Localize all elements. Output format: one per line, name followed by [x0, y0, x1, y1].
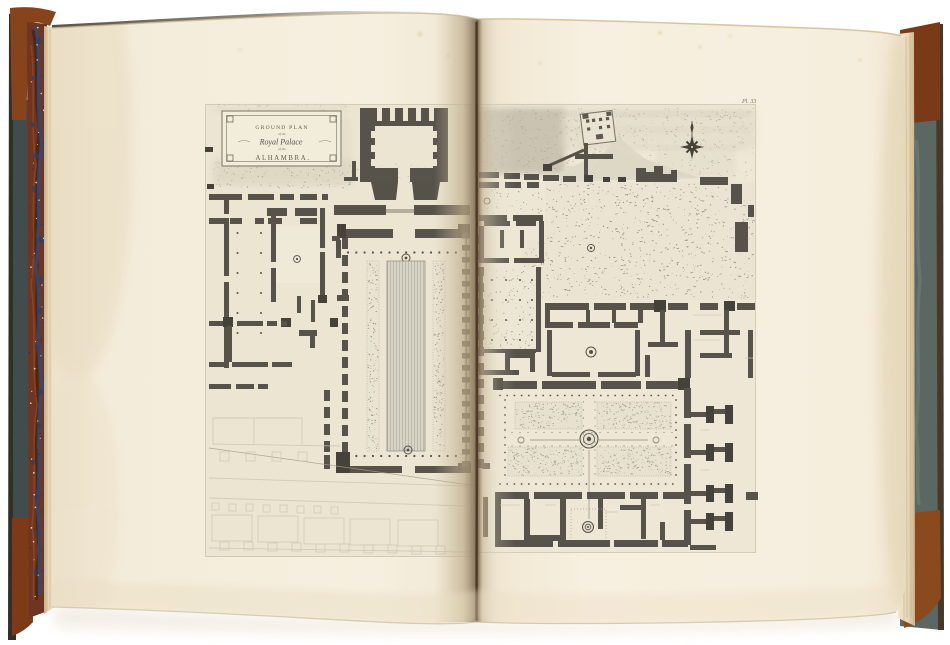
svg-text:of the: of the [278, 132, 286, 136]
svg-text:ALHAMBRA.: ALHAMBRA. [256, 155, 311, 162]
svg-text:Pl. 33: Pl. 33 [741, 99, 756, 105]
svg-text:GROUND PLAN: GROUND PLAN [255, 125, 308, 131]
svg-text:Royal Palace: Royal Palace [259, 138, 303, 147]
svg-text:of the: of the [278, 147, 286, 151]
